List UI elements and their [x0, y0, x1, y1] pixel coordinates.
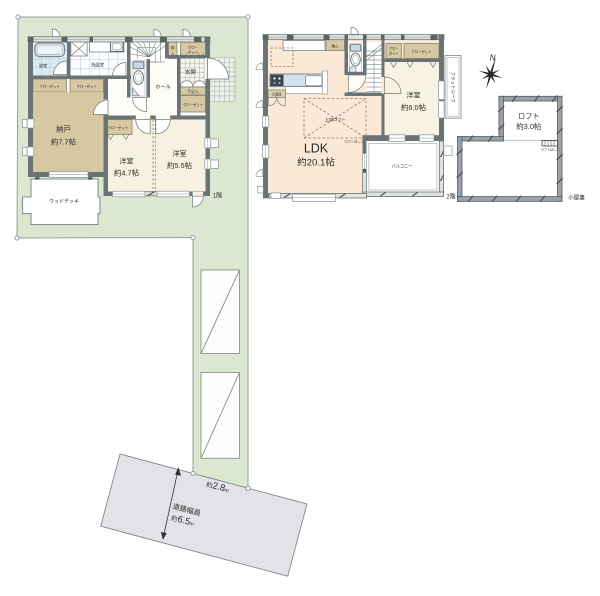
svg-text:ロフトはしご: ロフトはしご [541, 147, 559, 152]
svg-text:ロフト: ロフト [518, 112, 540, 121]
svg-text:約20.1帖: 約20.1帖 [297, 157, 335, 169]
svg-text:約4.7帖: 約4.7帖 [114, 169, 140, 178]
svg-text:洗面室: 洗面室 [91, 62, 105, 69]
svg-text:洋室: 洋室 [120, 157, 134, 166]
svg-text:クローゼット: クローゼット [183, 102, 203, 107]
svg-text:上部ロフト: 上部ロフト [325, 116, 346, 123]
svg-text:クローゼット: クローゼット [40, 84, 60, 89]
svg-text:洋室: 洋室 [407, 91, 421, 100]
svg-text:ゼット: ゼット [188, 50, 198, 55]
svg-text:約5.5帖: 約5.5帖 [167, 161, 193, 170]
svg-text:約7.7帖: 約7.7帖 [51, 138, 77, 147]
svg-text:物入: 物入 [332, 44, 340, 49]
svg-text:洋室: 洋室 [173, 149, 187, 158]
svg-text:バルコニー: バルコニー [392, 164, 413, 169]
svg-text:クロー: クロー [389, 46, 399, 51]
svg-text:小屋裏: 小屋裏 [568, 194, 585, 202]
svg-text:下足入: 下足入 [187, 89, 199, 94]
svg-text:浴室: 浴室 [39, 63, 48, 70]
svg-text:クローゼット: クローゼット [108, 125, 128, 130]
svg-text:1階: 1階 [213, 192, 222, 200]
svg-text:ロフトはしご: ロフトはしご [344, 139, 364, 144]
svg-text:2階: 2階 [446, 193, 455, 201]
svg-text:クローゼット: クローゼット [77, 84, 97, 89]
svg-text:玄関: 玄関 [185, 68, 196, 76]
svg-text:クロー: クロー [188, 45, 199, 50]
svg-text:納戸: 納戸 [56, 125, 70, 134]
svg-text:N: N [490, 54, 496, 63]
svg-text:ウッドデッキ: ウッドデッキ [49, 198, 79, 205]
svg-text:約3.0帖: 約3.0帖 [516, 122, 542, 131]
svg-text:LDK: LDK [304, 142, 329, 156]
svg-text:物: 物 [171, 45, 175, 50]
svg-text:ホール: ホール [155, 84, 171, 91]
svg-text:クローゼット: クローゼット [411, 49, 431, 54]
svg-text:約6.0帖: 約6.0帖 [401, 103, 427, 112]
svg-text:ゼット: ゼット [389, 51, 399, 56]
svg-text:冷蔵庫: 冷蔵庫 [272, 92, 282, 97]
